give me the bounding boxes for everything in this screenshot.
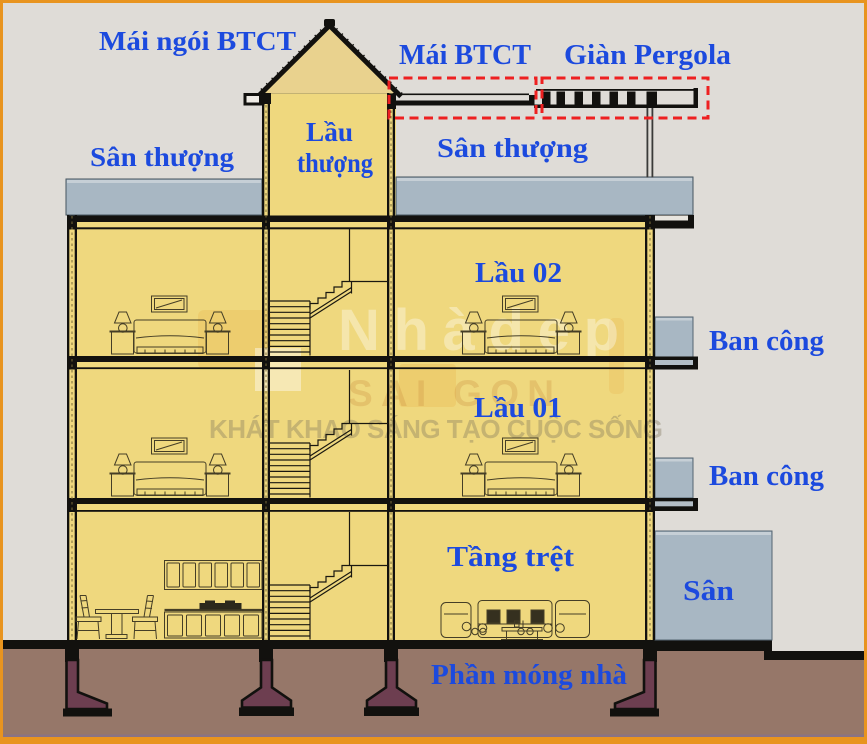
- svg-text:Ban công: Ban công: [709, 326, 824, 357]
- svg-text:Lầu 02: Lầu 02: [475, 258, 562, 289]
- svg-text:Ban công: Ban công: [709, 461, 824, 492]
- svg-text:Phần móng nhà: Phần móng nhà: [431, 660, 627, 691]
- svg-text:Sân thượng: Sân thượng: [90, 142, 235, 172]
- svg-text:Sân: Sân: [683, 576, 734, 607]
- svg-text:Sân thượng: Sân thượng: [437, 133, 589, 163]
- svg-text:KHÁT KHAO SÁNG TẠO CUỘC SỐNG: KHÁT KHAO SÁNG TẠO CUỘC SỐNG: [209, 414, 663, 444]
- svg-text:Tầng trệt: Tầng trệt: [447, 542, 575, 573]
- svg-text:Lầu: Lầu: [306, 117, 353, 147]
- svg-text:thượng: thượng: [297, 148, 373, 178]
- svg-text:Giàn Pergola: Giàn Pergola: [564, 39, 732, 71]
- svg-text:Lầu 01: Lầu 01: [474, 393, 562, 424]
- svg-text:Mái BTCT: Mái BTCT: [399, 39, 531, 71]
- svg-text:Mái ngói BTCT: Mái ngói BTCT: [99, 26, 296, 56]
